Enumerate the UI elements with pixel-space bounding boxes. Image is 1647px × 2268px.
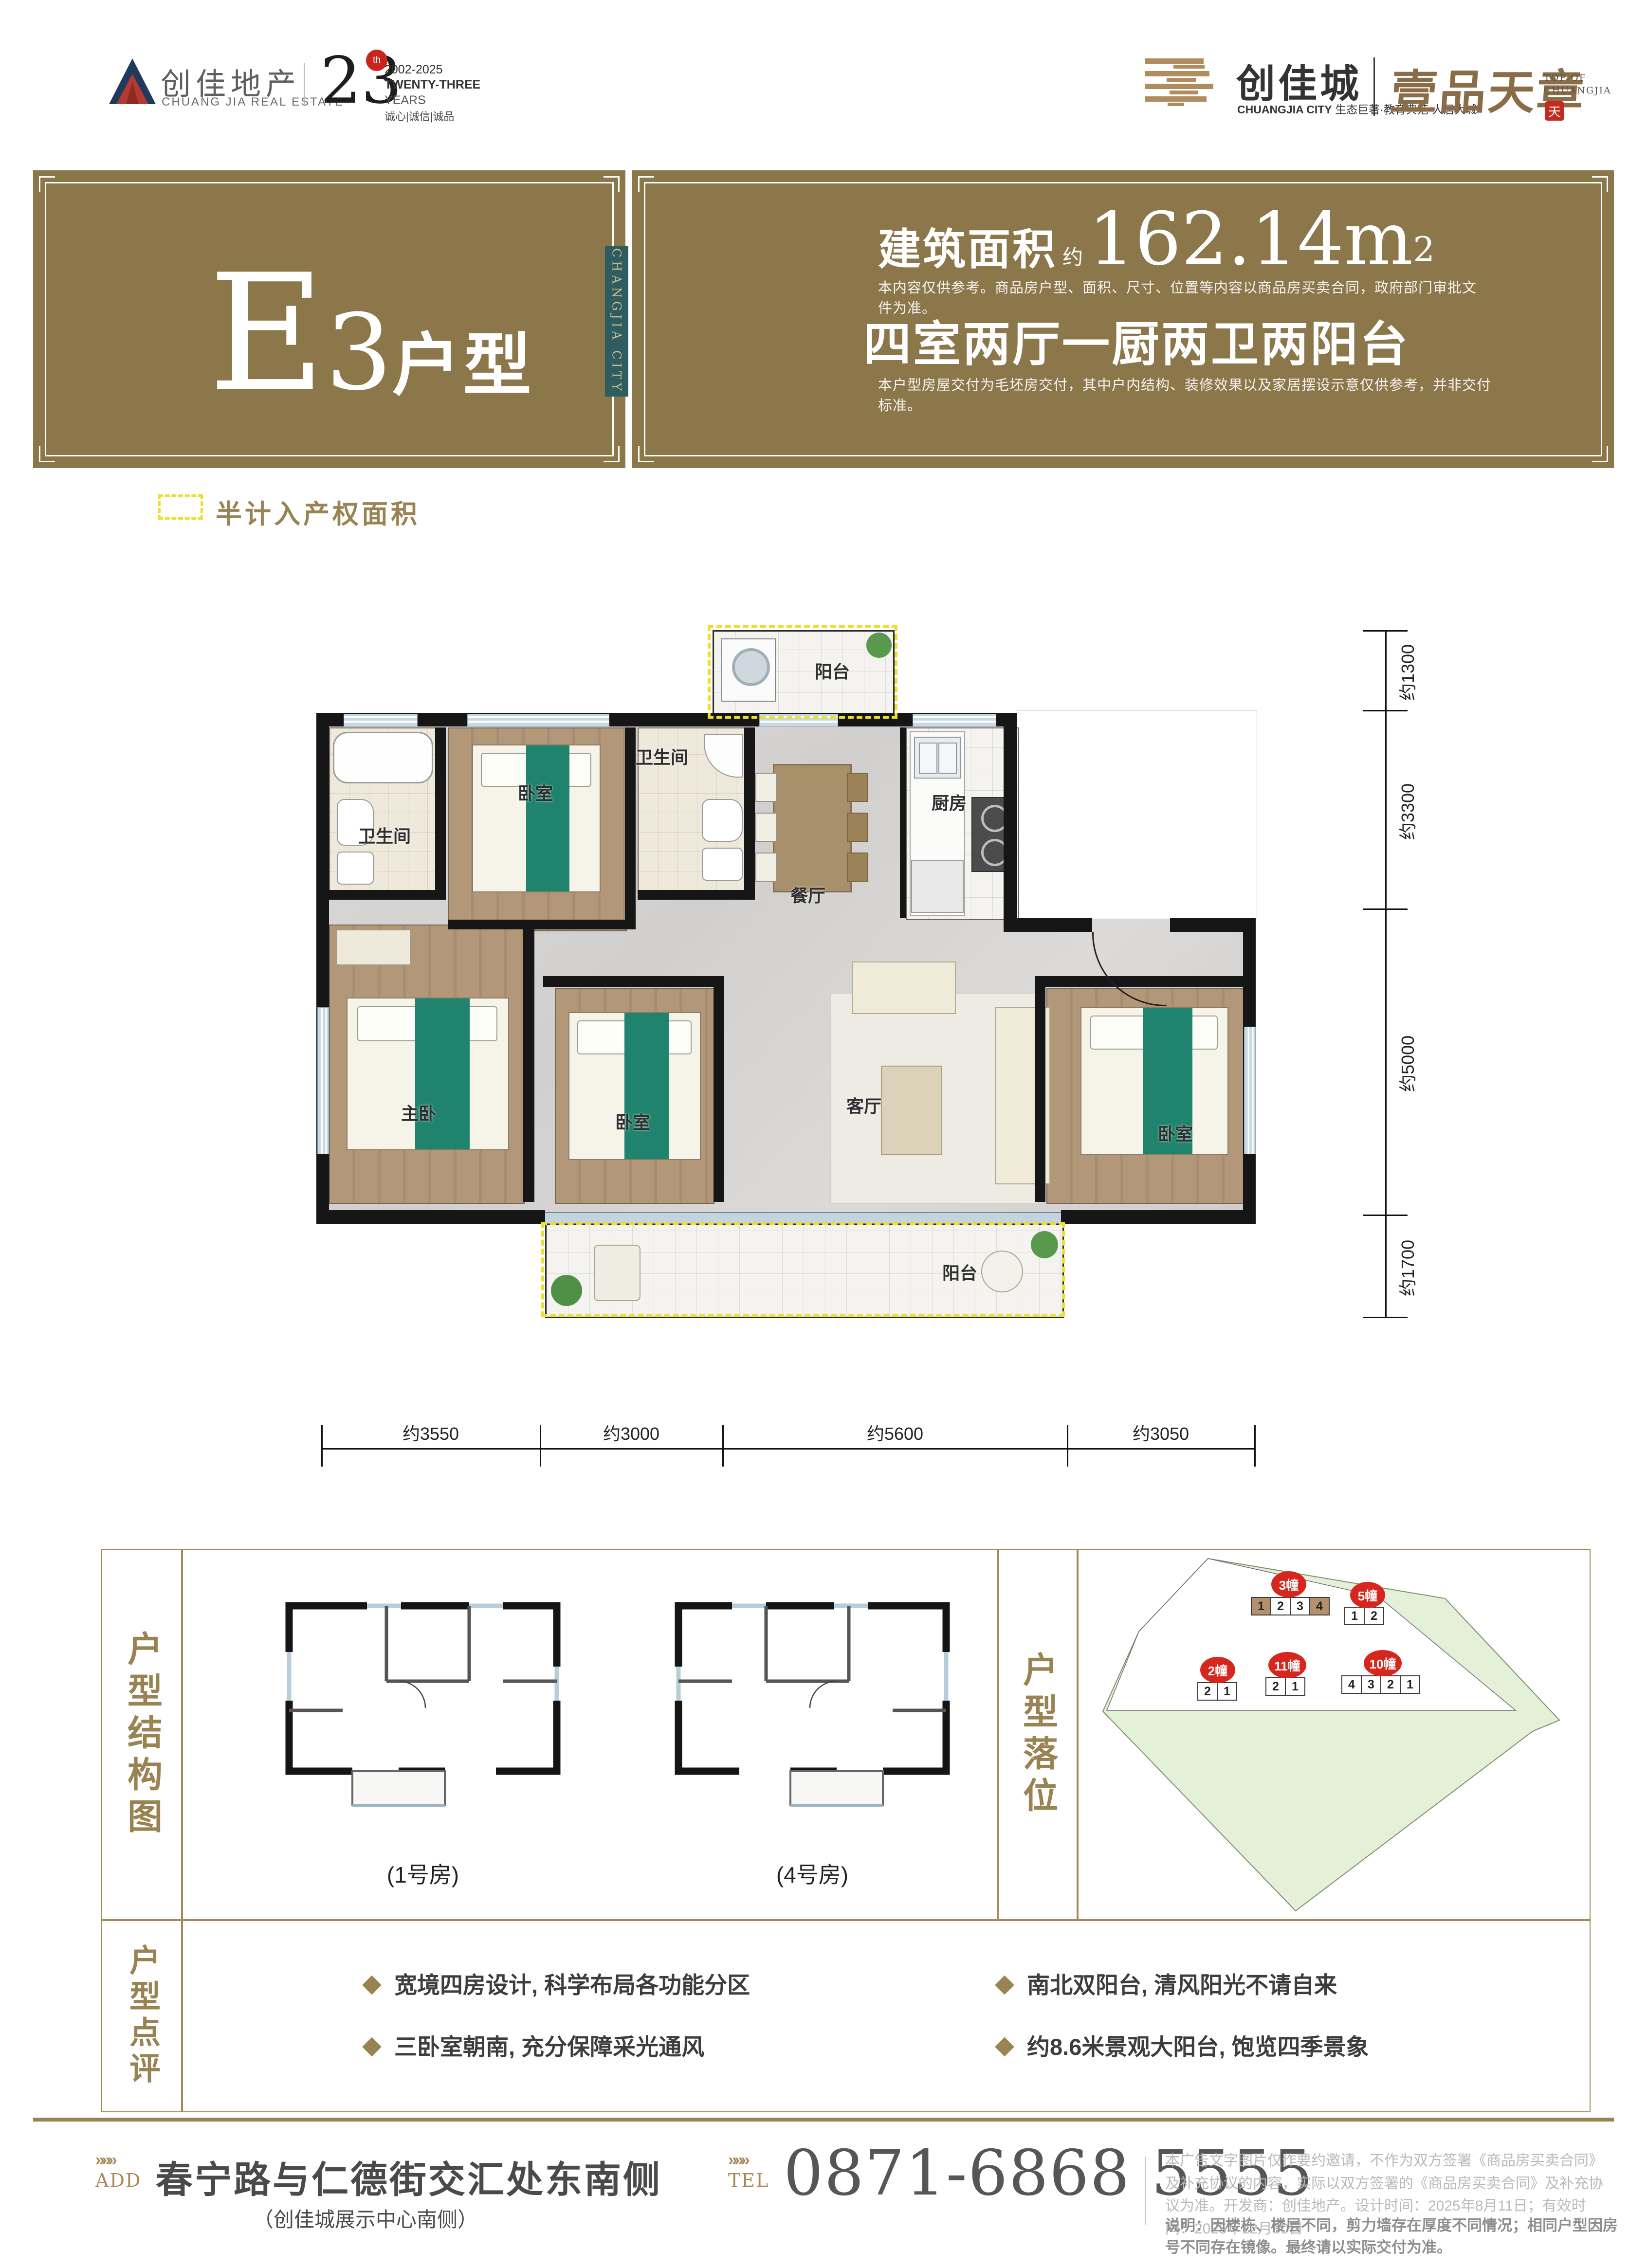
area-value: 162.14m xyxy=(1088,197,1413,282)
anniversary-en: TWENTY-THREE xyxy=(384,77,480,92)
area-line: 建筑面积 约 162.14m2 xyxy=(878,197,1435,282)
footer-tel-block: »»» TEL xyxy=(728,2151,769,2191)
building-2-units: 2 1 xyxy=(1198,1682,1237,1701)
review-bullet-1: ◆ 宽境四房设计, 科学布局各功能分区 xyxy=(362,1966,750,2000)
review-bullet-2: ◆ 三卧室朝南, 充分保障采光通风 xyxy=(362,2028,704,2062)
anniversary-years-label: YEARS xyxy=(384,93,480,108)
layout-disclaimer: 本户型房屋交付为毛坯房交付，其中户内结构、装修效果以及家居摆设示意仅供参考，并非… xyxy=(878,374,1501,415)
building-10-units: 4 3 2 1 xyxy=(1342,1675,1420,1694)
diamond-icon: ◆ xyxy=(362,1969,382,1998)
building-5-units: 1 2 xyxy=(1345,1607,1384,1625)
diamond-icon: ◆ xyxy=(362,2031,382,2060)
project-top-en-2: CHUANGJIA xyxy=(1544,85,1611,97)
dim-bottom-1: 约3550 xyxy=(382,1420,479,1445)
header-right-block: 建筑面积 约 162.14m2 本内容仅供参考。商品房户型、面积、尺寸、位置等内… xyxy=(632,170,1614,468)
top-bar: 创佳地产 CHUANG JIA REAL ESTATE 23 th 2002-2… xyxy=(0,0,1647,161)
unit-cell: 4 xyxy=(1341,1675,1362,1694)
cell-review-bullets: ◆ 宽境四房设计, 科学布局各功能分区 ◆ 三卧室朝南, 充分保障采光通风 ◆ … xyxy=(181,1919,1591,2112)
unit-cell: 1 xyxy=(1285,1677,1305,1696)
diamond-icon: ◆ xyxy=(995,2031,1014,2060)
footer-legal-2: 说明：因楼栋、楼层不同，剪力墙存在厚度不同情况；相同户型因房号不同存在镜像。最终… xyxy=(1165,2213,1632,2257)
footer-address-sub: （创佳城展示中心南侧） xyxy=(253,2203,478,2233)
area-approx: 约 xyxy=(1062,245,1083,269)
chevrons-icon: »»» xyxy=(95,2151,141,2170)
dim-bottom-2: 约3000 xyxy=(583,1420,680,1445)
kitchen-sink xyxy=(914,737,961,779)
sink xyxy=(337,852,374,885)
building-11-marker: 11幢 xyxy=(1268,1652,1306,1678)
unit-cell: 2 xyxy=(1270,1597,1291,1615)
dim-bottom-4: 约3050 xyxy=(1112,1420,1209,1445)
unit-cell: 4 xyxy=(1309,1597,1330,1615)
room-label-balcony-north: 阳台 xyxy=(793,658,871,683)
project-top-en-1: TOP OF xyxy=(1544,72,1611,85)
unit-cell: 2 xyxy=(1197,1682,1218,1701)
tel-label: TEL xyxy=(728,2170,769,2191)
building-11-units: 2 1 xyxy=(1266,1677,1305,1696)
footer-separator xyxy=(33,2118,1614,2122)
structure-plan-2 xyxy=(664,1584,961,1837)
brand-left-slogan: 诚心|诚信|诚品 xyxy=(384,110,480,124)
review-bullet-text: 南北双阳台, 清风阳光不请自来 xyxy=(1027,1966,1337,2000)
room-label-master: 主卧 xyxy=(380,1100,457,1125)
bathtub xyxy=(333,732,433,783)
review-bullet-text: 约8.6米景观大阳台, 饱览四季景象 xyxy=(1027,2028,1369,2062)
footer-add-block: »»» ADD xyxy=(95,2151,141,2191)
brand-right-divider xyxy=(1373,57,1375,116)
unit-cell: 3 xyxy=(1361,1675,1381,1694)
dining-chair xyxy=(755,773,777,802)
dining-chair xyxy=(755,813,777,842)
unit-cell: 2 xyxy=(1265,1677,1286,1696)
legend-dashed-box-icon xyxy=(158,494,203,520)
dining-table xyxy=(773,764,852,892)
brand-left-name-en: CHUANG JIA REAL ESTATE xyxy=(162,95,344,109)
structure-plan-1 xyxy=(274,1584,571,1837)
dim-right-3: 约5000 xyxy=(1394,1015,1419,1112)
desk xyxy=(336,929,411,965)
header-left-block: E3户型 xyxy=(33,170,625,468)
review-bullet-4: ◆ 约8.6米景观大阳台, 饱览四季景象 xyxy=(995,2028,1369,2062)
room-label-dining: 餐厅 xyxy=(769,882,847,907)
room-label-kitchen: 厨房 xyxy=(910,789,988,815)
diamond-icon: ◆ xyxy=(995,1969,1014,1998)
room-label-bath-2: 卫生间 xyxy=(623,744,701,769)
bed xyxy=(568,1012,701,1160)
unit-cell: 2 xyxy=(1380,1675,1401,1694)
room-label-living: 客厅 xyxy=(825,1092,903,1118)
cell-structure-plans: (1号房) (4号房) xyxy=(181,1549,999,1921)
dim-right-2: 约3300 xyxy=(1394,763,1419,860)
dim-bottom-3: 约5600 xyxy=(846,1420,944,1445)
room-label-bedroom-center: 卧室 xyxy=(594,1108,672,1134)
dining-chair xyxy=(847,813,868,842)
brand-right-en: CHUANGJIA CITY xyxy=(1237,103,1332,116)
chevrons-icon: »»» xyxy=(728,2151,769,2170)
triangle-logo-icon xyxy=(108,57,157,105)
building-10-marker: 10幢 xyxy=(1364,1650,1402,1676)
cell-structure-title: 户型结构图 xyxy=(101,1549,183,1921)
room-label-bath-1: 卫生间 xyxy=(346,822,423,848)
fridge xyxy=(911,860,964,913)
anniversary-detail: 2002-2025 TWENTY-THREE YEARS 诚心|诚信|诚品 xyxy=(384,62,480,123)
unit-cell: 1 xyxy=(1217,1682,1237,1701)
dining-chair xyxy=(847,853,868,882)
chuangjia-city-logo-icon xyxy=(1145,58,1223,107)
dim-right-4: 约1700 xyxy=(1394,1219,1419,1317)
room-label-balcony-south: 阳台 xyxy=(921,1259,999,1285)
flyer-page: 创佳地产 CHUANG JIA REAL ESTATE 23 th 2002-2… xyxy=(0,0,1647,2268)
footer-divider xyxy=(1145,2157,1146,2225)
structure-title: 户型结构图 xyxy=(102,1550,182,1920)
unit-type-number: 3 xyxy=(326,291,392,414)
dining-chair xyxy=(847,773,868,802)
cell-review-title: 户型点评 xyxy=(101,1919,183,2112)
room-label-bedroom-top: 卧室 xyxy=(496,780,574,805)
unit-type-letter: E xyxy=(208,240,326,427)
unit-cell: 2 xyxy=(1364,1607,1384,1625)
layout-desc: 四室两厅一厨两卫两阳台 xyxy=(863,306,1409,375)
area-sup: 2 xyxy=(1413,230,1435,270)
add-label: ADD xyxy=(95,2170,141,2191)
building-3-units: 1 2 3 4 xyxy=(1252,1597,1330,1615)
side-tab-changjia-city: CHANGJIA CITY xyxy=(605,246,628,397)
review-bullet-text: 三卧室朝南, 充分保障采光通风 xyxy=(394,2028,704,2062)
building-2-marker: 2幢 xyxy=(1200,1657,1235,1683)
cell-location-title: 户型落位 xyxy=(997,1549,1079,1921)
bed xyxy=(472,744,601,892)
dim-right-1: 约1300 xyxy=(1394,624,1419,721)
structure-caption-2: (4号房) xyxy=(715,1857,910,1889)
brand-left-divider xyxy=(304,63,305,105)
footer-address: 春宁路与仁德街交汇处东南侧 xyxy=(156,2150,662,2203)
area-label: 建筑面积 xyxy=(878,224,1057,274)
structure-caption-1: (1号房) xyxy=(326,1857,520,1889)
anniversary-range: 2002-2025 xyxy=(384,62,480,77)
red-seal-icon: 天 xyxy=(1545,101,1564,121)
room-label-bedroom-right: 卧室 xyxy=(1136,1120,1214,1145)
review-title: 户型点评 xyxy=(102,1920,182,2111)
bed-master xyxy=(347,998,509,1150)
sink xyxy=(702,848,743,881)
unit-type-suffix: 户型 xyxy=(392,326,534,405)
floorplan: 阳台 xyxy=(302,618,1265,1370)
site-map xyxy=(1078,1550,1588,1918)
unit-cell: 1 xyxy=(1344,1607,1365,1625)
dining-chair xyxy=(755,853,777,882)
building-3-marker: 3幢 xyxy=(1271,1571,1306,1597)
location-title: 户型落位 xyxy=(998,1550,1078,1920)
unit-cell: 1 xyxy=(1251,1597,1271,1615)
review-bullet-text: 宽境四房设计, 科学布局各功能分区 xyxy=(394,1966,750,2000)
sofa-small xyxy=(852,962,956,1014)
building-5-marker: 5幢 xyxy=(1350,1582,1385,1608)
unit-cell: 3 xyxy=(1290,1597,1310,1615)
legend-label: 半计入产权面积 xyxy=(216,492,420,531)
exterior-cutout xyxy=(1017,710,1257,919)
cell-site-map: 1 2 3 4 3幢 1 2 5幢 2 1 2幢 2 1 11幢 4 3 2 1 xyxy=(1077,1549,1591,1921)
unit-cell: 1 xyxy=(1400,1675,1420,1694)
review-bullet-3: ◆ 南北双阳台, 清风阳光不请自来 xyxy=(995,1966,1337,2000)
unit-type-title: E3户型 xyxy=(208,253,534,414)
toilet xyxy=(702,799,743,842)
project-top-en: TOP OF CHUANGJIA xyxy=(1544,72,1611,97)
